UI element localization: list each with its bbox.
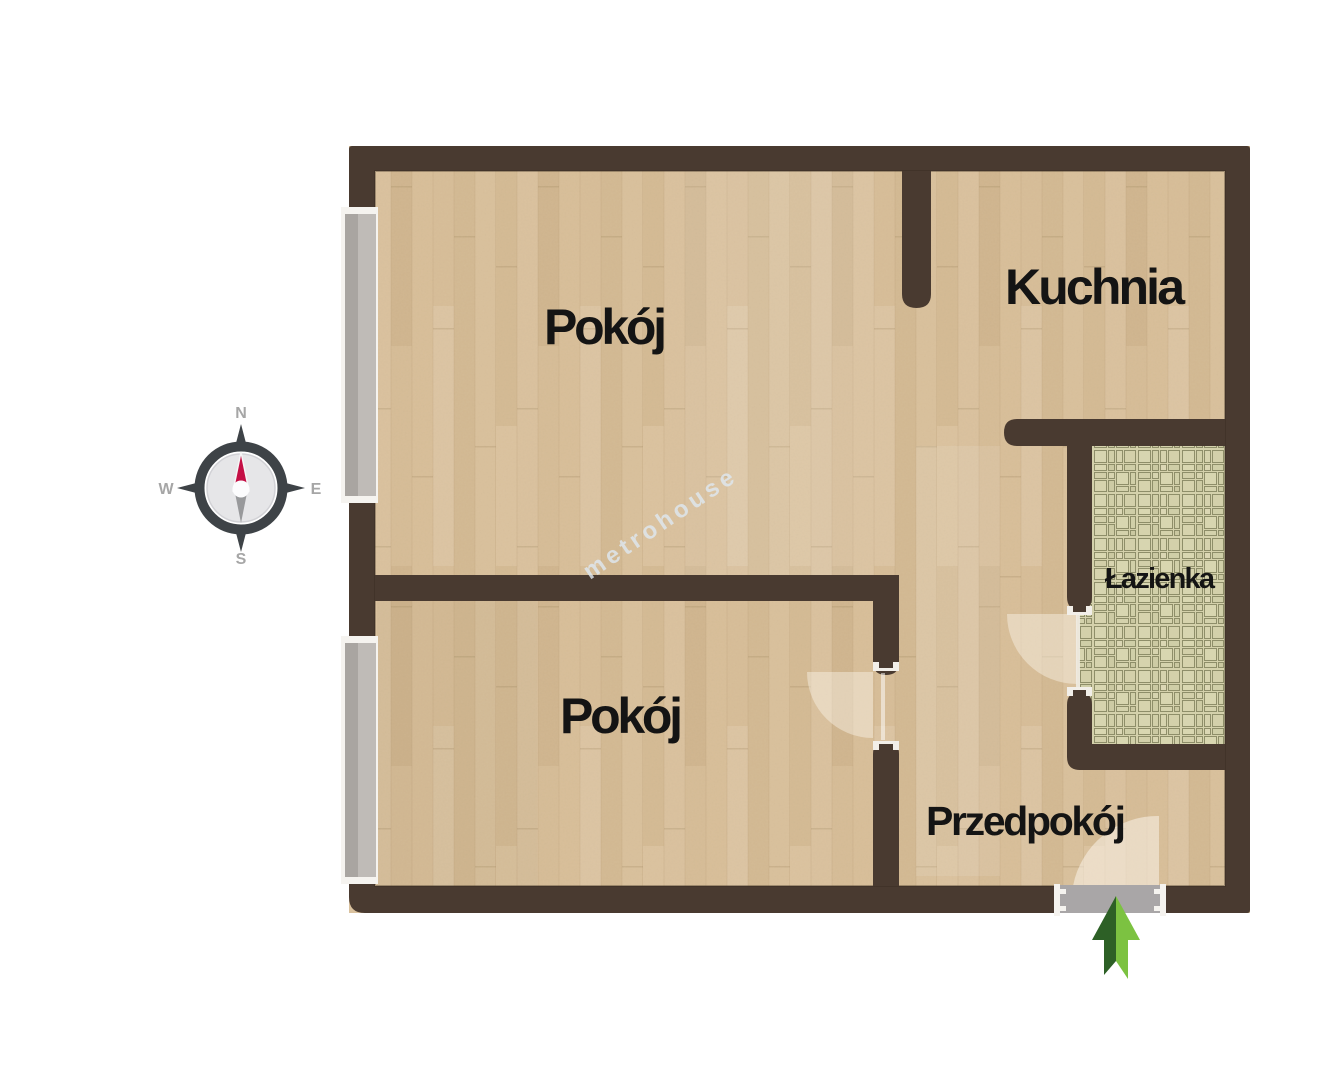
svg-text:Przedpokój: Przedpokój xyxy=(926,798,1126,844)
svg-text:E: E xyxy=(311,481,322,498)
svg-text:Kuchnia: Kuchnia xyxy=(1005,259,1186,315)
svg-text:Łazienka: Łazienka xyxy=(1105,563,1216,595)
svg-text:S: S xyxy=(236,551,247,568)
svg-text:Pokój: Pokój xyxy=(560,688,683,744)
svg-text:N: N xyxy=(235,405,247,422)
svg-text:Pokój: Pokój xyxy=(544,299,667,355)
svg-text:W: W xyxy=(158,481,174,498)
